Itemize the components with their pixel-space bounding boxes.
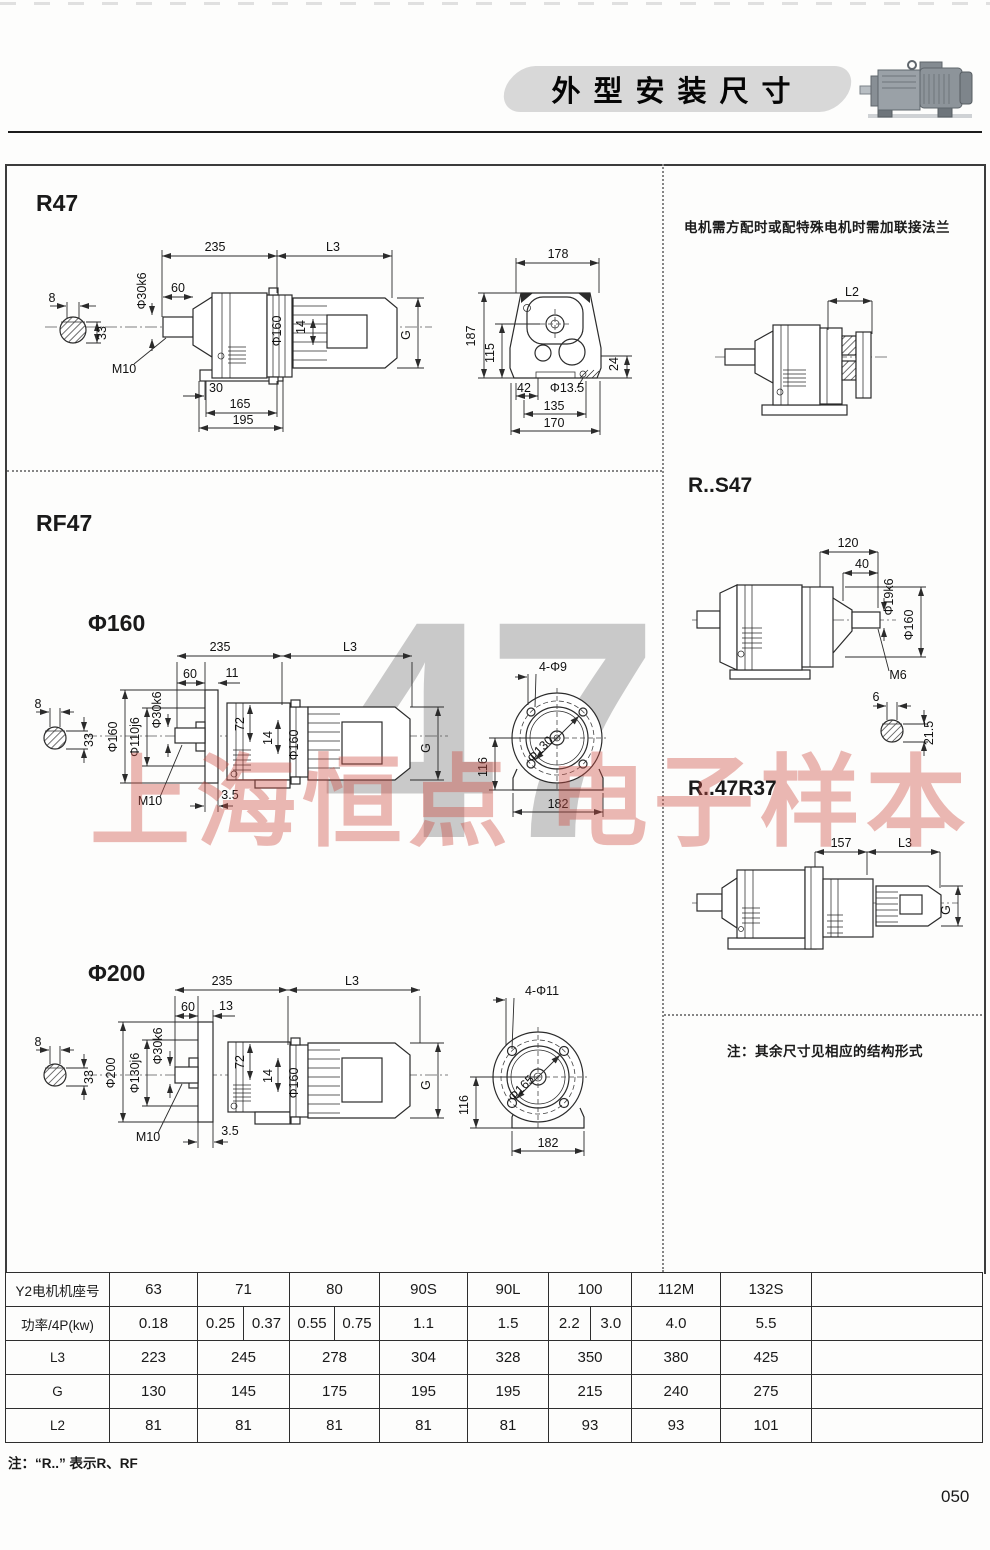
cell: 71 (198, 1273, 290, 1307)
dim-label: 116 (476, 757, 490, 777)
rf200-side-drawing: 235 L3 60 13 8 33 Φ200 Φ130j6 Φ30k6 M10 … (30, 958, 475, 1155)
cell: 350 (549, 1341, 632, 1375)
cell: 81 (380, 1409, 468, 1443)
dim-label: 182 (548, 797, 569, 811)
table-row-l3: L3 223 245 278 304 328 350 380 425 (6, 1341, 983, 1375)
dim-label: 165 (230, 397, 251, 411)
gearmotor-photo (858, 52, 983, 124)
dim-label: Φ30k6 (150, 691, 164, 728)
dim-label: G (399, 330, 413, 340)
dim-label: M10 (112, 362, 136, 376)
rf160-side-geometry (44, 690, 448, 788)
dim-label: 195 (233, 413, 254, 427)
cell: 195 (468, 1375, 549, 1409)
dim-label: G (419, 743, 433, 753)
dim-label: Φ160 (902, 610, 916, 641)
cell: 90S (380, 1273, 468, 1307)
rs47-drawing: 120 40 Φ19k6 Φ160 M6 6 21.5 (685, 525, 985, 760)
flange-note: 电机需方配时或配特殊电机时需加联接法兰 (684, 216, 950, 236)
r47-front-geometry (510, 293, 601, 378)
dim-label: L2 (845, 285, 859, 299)
cell: 2.2 (549, 1307, 590, 1340)
dim-label: Φ200 (104, 1058, 118, 1089)
dim-label: 33 (95, 326, 109, 340)
cell: 275 (721, 1375, 812, 1409)
r47r37-drawing: 157 L3 G (685, 835, 985, 970)
scan-artifact (0, 2, 990, 5)
cell: 81 (198, 1409, 290, 1443)
dim-label: 8 (49, 291, 56, 305)
table-row-power: 功率/4P(kw) 0.18 0.25 0.37 0.55 0.75 1.1 1… (6, 1307, 983, 1341)
cell: 245 (198, 1341, 290, 1375)
heading-r47r37: R..47R37 (688, 777, 777, 801)
cell-empty (812, 1307, 983, 1341)
dim-label: 178 (548, 247, 569, 261)
row-label: 功率/4P(kw) (6, 1307, 110, 1341)
dim-label: 120 (838, 536, 859, 550)
table-row-l2: L2 81 81 81 81 81 93 93 101 (6, 1409, 983, 1443)
cell-split: 0.25 0.37 (198, 1307, 290, 1341)
cell-empty (812, 1409, 983, 1443)
dim-label: L3 (326, 240, 340, 254)
cell: 101 (721, 1409, 812, 1443)
dim-label: 3.5 (221, 1124, 238, 1138)
cell-empty (812, 1273, 983, 1307)
dim-label: 182 (538, 1136, 559, 1150)
dim-label: 60 (183, 667, 197, 681)
rf160-front-drawing: 4-Φ9 Φ130 116 182 (460, 650, 665, 825)
heading-rs47: R..S47 (688, 474, 752, 498)
page-title: 外型安装尺寸 (505, 66, 850, 112)
cell: 278 (290, 1341, 380, 1375)
dim-label: 235 (210, 640, 231, 654)
dim-label: L3 (345, 974, 359, 988)
table-row-g: G 130 145 175 195 195 215 240 275 (6, 1375, 983, 1409)
flange-adapter-geometry (715, 325, 888, 415)
dim-label: M10 (138, 794, 162, 808)
dim-label: 115 (483, 343, 497, 363)
heading-rf160: Φ160 (88, 610, 145, 637)
cell: 175 (290, 1375, 380, 1409)
cell: 380 (632, 1341, 721, 1375)
header-banner: 外型安装尺寸 (505, 66, 850, 112)
dim-label: 21.5 (922, 721, 936, 745)
dim-label: 14 (261, 731, 275, 745)
dim-label: 11 (226, 666, 239, 680)
cell: 130 (110, 1375, 198, 1409)
cell: 3.0 (590, 1307, 632, 1340)
dim-label: L3 (343, 640, 357, 654)
cell: 145 (198, 1375, 290, 1409)
dim-label: Φ13.5 (550, 381, 584, 395)
right-dotted-divider (664, 1014, 982, 1016)
dim-label: L3 (898, 836, 912, 850)
table-row-frame-size: Y2电机机座号 63 71 80 90S 90L 100 112M 132S (6, 1273, 983, 1307)
r47-front-drawing: 178 187 115 24 42 Φ13.5 135 170 (455, 230, 655, 445)
dim-label: 14 (261, 1069, 275, 1083)
rs47-dimensions (820, 552, 928, 756)
dim-label: Φ160 (270, 316, 284, 347)
rf200-front-geometry (489, 1027, 587, 1131)
cell: 112M (632, 1273, 721, 1307)
cell: 100 (549, 1273, 632, 1307)
cell: 0.25 (198, 1307, 243, 1340)
left-dotted-divider (7, 470, 662, 472)
dim-label: Φ110j6 (128, 717, 142, 757)
cell: 132S (721, 1273, 812, 1307)
cell: 80 (290, 1273, 380, 1307)
row-label: Y2电机机座号 (6, 1273, 110, 1307)
r47-side-drawing: 8 33 M10 235 L3 60 Φ30k6 Φ160 14 G 30 16… (30, 240, 470, 445)
cell-split: 0.55 0.75 (290, 1307, 380, 1341)
cell: 0.37 (243, 1307, 289, 1340)
cell: 304 (380, 1341, 468, 1375)
cell: 81 (110, 1409, 198, 1443)
cell: 1.1 (380, 1307, 468, 1341)
dim-label: 60 (181, 1000, 195, 1014)
dim-label: G (939, 905, 953, 915)
cell: 93 (549, 1409, 632, 1443)
dim-label: Φ160 (287, 1068, 301, 1099)
dim-label: 30 (209, 381, 223, 395)
side-note: 注：其余尺寸见相应的结构形式 (727, 1040, 923, 1060)
r47r37-geometry (692, 867, 958, 949)
dim-label: 60 (171, 281, 185, 295)
dim-label: 4-Φ11 (525, 984, 559, 998)
dim-label: Φ130j6 (128, 1053, 142, 1094)
dim-label: 3.5 (221, 788, 238, 802)
row-label: G (6, 1375, 110, 1409)
dim-label: 135 (544, 399, 565, 413)
cell: 223 (110, 1341, 198, 1375)
dim-label: 72 (233, 1055, 247, 1069)
dim-label: 24 (607, 357, 621, 371)
dim-label: G (419, 1080, 433, 1090)
page-number: 050 (941, 1487, 969, 1507)
cell: 63 (110, 1273, 198, 1307)
dim-label: 170 (544, 416, 565, 430)
heading-rf47: RF47 (36, 510, 92, 537)
cell-split: 2.2 3.0 (549, 1307, 632, 1341)
rs47-geometry (692, 585, 903, 742)
cell: 0.18 (110, 1307, 198, 1341)
dim-label: 8 (35, 697, 42, 711)
dim-label: Φ30k6 (135, 272, 149, 309)
cell-empty (812, 1341, 983, 1375)
cell: 81 (468, 1409, 549, 1443)
dim-label: 6 (873, 690, 880, 704)
dim-label: M6 (889, 668, 906, 682)
cell: 425 (721, 1341, 812, 1375)
dim-label: Φ30k6 (151, 1027, 165, 1064)
rf160-side-drawing: 235 L3 60 11 8 33 Φ160 Φ110j6 Φ30k6 M10 … (30, 630, 475, 815)
row-label: L3 (6, 1341, 110, 1375)
cell: 195 (380, 1375, 468, 1409)
dim-label: 40 (855, 557, 869, 571)
cell: 5.5 (721, 1307, 812, 1341)
cell: 1.5 (468, 1307, 549, 1341)
dim-label: 235 (205, 240, 226, 254)
table-footnote: 注：“R..” 表示R、RF (8, 1452, 138, 1472)
heading-rf200: Φ200 (88, 960, 145, 987)
header-rule (8, 131, 982, 133)
flange-adapter-drawing: L2 (690, 280, 985, 425)
rf200-front-drawing: 4-Φ11 Φ165 116 182 (455, 973, 660, 1158)
dim-label: 33 (82, 733, 96, 747)
cell: 90L (468, 1273, 549, 1307)
dim-label: 8 (35, 1035, 42, 1049)
dim-label: 157 (831, 836, 852, 850)
dim-label: 235 (212, 974, 233, 988)
dim-label: M10 (136, 1130, 160, 1144)
row-label: L2 (6, 1409, 110, 1443)
cell: 81 (290, 1409, 380, 1443)
catalog-page: 外型安装尺寸 47 R47 RF47 Φ160 Φ200 电机需方配时或配特殊电… (0, 0, 990, 1550)
cell: 240 (632, 1375, 721, 1409)
rf160-front-geometry (508, 688, 606, 792)
dim-label: 13 (219, 999, 233, 1013)
cell: 215 (549, 1375, 632, 1409)
cell: 4.0 (632, 1307, 721, 1341)
dim-label: 116 (457, 1095, 471, 1115)
cell: 328 (468, 1341, 549, 1375)
heading-r47: R47 (36, 190, 78, 217)
dimension-table: Y2电机机座号 63 71 80 90S 90L 100 112M 132S 功… (5, 1272, 983, 1443)
cell: 93 (632, 1409, 721, 1443)
dim-label: 42 (517, 381, 531, 395)
dim-label: 14 (294, 320, 308, 334)
dim-label: 33 (82, 1070, 96, 1084)
dim-label: Φ19k6 (882, 578, 896, 615)
dim-label: 187 (464, 326, 478, 347)
cell: 0.55 (290, 1307, 334, 1340)
dim-label: 72 (233, 717, 247, 731)
dim-label: Φ160 (287, 730, 301, 761)
dim-label: 4-Φ9 (539, 660, 567, 674)
cell-empty (812, 1375, 983, 1409)
cell: 0.75 (334, 1307, 379, 1340)
dim-label: Φ160 (106, 722, 120, 753)
